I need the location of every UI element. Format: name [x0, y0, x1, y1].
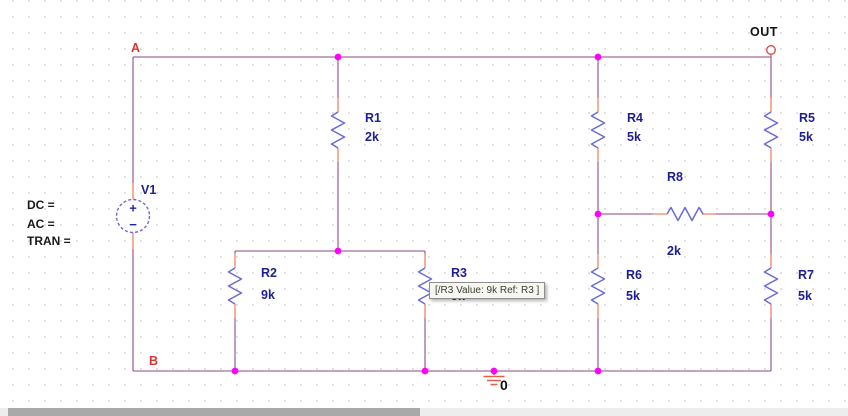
junction-dot [232, 368, 239, 375]
v1-param-dc[interactable]: DC = [27, 199, 55, 213]
minus-sign: − [129, 217, 137, 232]
resistor-r8-zigzag [667, 208, 703, 221]
resistor-r1-zigzag [332, 112, 345, 148]
r6-ref-label[interactable]: R6 [626, 268, 642, 282]
resistor-r4[interactable] [592, 98, 605, 162]
out-pin-circle[interactable] [767, 46, 776, 55]
junction-dot [595, 211, 602, 218]
r8-value-label[interactable]: 2k [667, 244, 681, 258]
junction-dot [768, 211, 775, 218]
horizontal-scrollbar-thumb[interactable] [8, 408, 420, 416]
r5-value-label[interactable]: 5k [799, 130, 813, 144]
r8-ref-label[interactable]: R8 [667, 170, 683, 184]
schematic-svg: + − [0, 0, 848, 408]
junction-dots [232, 54, 775, 375]
r7-value-label[interactable]: 5k [798, 289, 812, 303]
schematic-canvas[interactable]: + − A B [0, 0, 848, 408]
junction-dot [422, 368, 429, 375]
r7-ref-label[interactable]: R7 [798, 268, 814, 282]
v1-ref-label[interactable]: V1 [141, 183, 156, 197]
junction-dot [335, 54, 342, 61]
junction-dot [491, 368, 498, 375]
resistor-r6-zigzag [592, 268, 605, 304]
resistor-r2-zigzag [229, 268, 242, 304]
r1-value-label[interactable]: 2k [365, 130, 379, 144]
v1-param-ac[interactable]: AC = [27, 218, 55, 232]
resistor-r7-zigzag [765, 268, 778, 304]
r4-ref-label[interactable]: R4 [627, 111, 643, 125]
v1-param-tran[interactable]: TRAN = [27, 235, 71, 249]
horizontal-scrollbar-track[interactable] [0, 408, 848, 416]
r3-ref-label[interactable]: R3 [451, 266, 467, 280]
resistor-r7[interactable] [765, 254, 778, 318]
junction-dot [595, 368, 602, 375]
net-label-a[interactable]: A [131, 41, 140, 55]
resistor-r4-zigzag [592, 112, 605, 148]
resistor-r6[interactable] [592, 254, 605, 318]
resistor-r2[interactable] [229, 254, 242, 318]
r5-ref-label[interactable]: R5 [799, 111, 815, 125]
resistor-r1[interactable] [332, 98, 345, 162]
resistor-r5[interactable] [765, 98, 778, 162]
r6-value-label[interactable]: 5k [626, 289, 640, 303]
port-label-out[interactable]: OUT [750, 25, 778, 39]
resistor-r5-zigzag [765, 112, 778, 148]
r4-value-label[interactable]: 5k [627, 130, 641, 144]
ground-label-0[interactable]: 0 [500, 377, 508, 393]
schematic-window: + − A B [0, 0, 848, 416]
plus-sign: + [129, 201, 137, 216]
net-label-b[interactable]: B [149, 354, 158, 368]
r2-value-label[interactable]: 9k [261, 288, 275, 302]
junction-dot [335, 248, 342, 255]
r1-ref-label[interactable]: R1 [365, 111, 381, 125]
r3-value-tooltip: [/R3 Value: 9k Ref: R3 ] [429, 282, 545, 299]
resistor-r8[interactable] [653, 208, 716, 221]
r2-ref-label[interactable]: R2 [261, 266, 277, 280]
junction-dot [595, 54, 602, 61]
